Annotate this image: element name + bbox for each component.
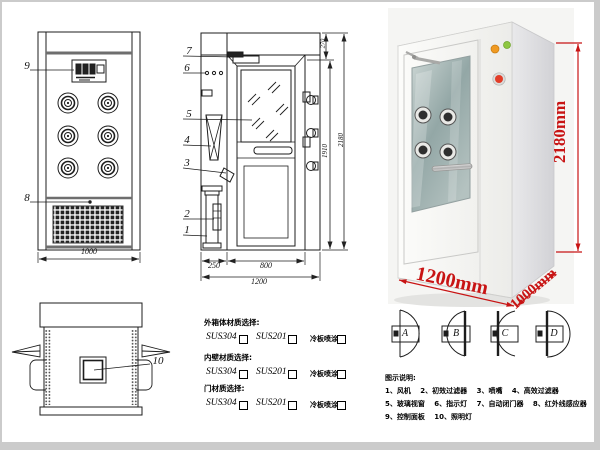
material-checkbox-outer-sus304[interactable] xyxy=(239,335,248,344)
legend-line: 9、控制面板 10、照明灯 xyxy=(385,412,472,422)
nozzle-icon xyxy=(58,158,78,178)
door-style-letter-d: D xyxy=(548,328,560,339)
dim-total-height: 2180 xyxy=(337,120,345,160)
material-option-label: SUS201 xyxy=(256,332,287,342)
page-frame-right xyxy=(594,0,600,450)
glass-door xyxy=(410,56,470,212)
legend-line: 1、风机 2、初效过滤器 3、喷嘴 4、高效过滤器 xyxy=(385,386,559,396)
dim-left-bay: 250 xyxy=(200,261,228,270)
nozzle-icon xyxy=(58,126,78,146)
front-view-drawing xyxy=(30,32,140,263)
door-style-letter-c: C xyxy=(499,328,511,339)
top-view-drawing xyxy=(12,303,170,415)
photo-height-label: 2180mm xyxy=(550,77,570,187)
callout-10: 10 xyxy=(150,355,166,367)
callout-5: 5 xyxy=(183,108,195,120)
material-option-label: 冷板喷涂 xyxy=(310,369,338,379)
material-checkbox-outer-sus201[interactable] xyxy=(288,335,297,344)
callout-3: 3 xyxy=(181,157,193,169)
dim-front-width: 1000 xyxy=(74,247,104,256)
legend-title: 图示说明: xyxy=(385,373,416,383)
nozzle-icon xyxy=(98,126,118,146)
dim-top-section: 270 xyxy=(320,33,327,55)
nozzle-icon xyxy=(98,93,118,113)
indicator-light-green xyxy=(504,42,511,49)
material-checkbox-inner-sus201[interactable] xyxy=(288,370,297,379)
callout-6: 6 xyxy=(181,62,193,74)
material-checkbox-door-sus201[interactable] xyxy=(288,401,297,410)
legend-line: 5、玻璃视窗 6、指示灯 7、自动闭门器 8、红外线感应器 xyxy=(385,399,587,409)
air-grille xyxy=(53,206,123,243)
dim-door-width: 800 xyxy=(252,261,280,270)
dim-total-width: 1200 xyxy=(245,277,273,286)
callout-9: 9 xyxy=(21,60,33,72)
door-style-letter-a: A xyxy=(399,328,411,339)
nozzle-icon xyxy=(98,158,118,178)
page-frame-bottom xyxy=(0,442,600,450)
material-checkbox-door-coldplate[interactable] xyxy=(337,401,346,410)
material-checkbox-door-sus304[interactable] xyxy=(239,401,248,410)
material-option-label: SUS201 xyxy=(256,367,287,377)
door-style-icons xyxy=(392,310,570,357)
material-section-title: 门材质选择: xyxy=(204,383,245,394)
page-frame-top xyxy=(0,0,600,2)
material-option-label: SUS304 xyxy=(206,398,237,408)
callout-8: 8 xyxy=(21,192,33,204)
callout-7: 7 xyxy=(183,45,195,57)
material-option-label: SUS304 xyxy=(206,332,237,342)
material-checkbox-inner-coldplate[interactable] xyxy=(337,370,346,379)
dim-door-height: 1910 xyxy=(321,131,329,171)
material-option-label: SUS201 xyxy=(256,398,287,408)
material-option-label: 冷板喷涂 xyxy=(310,334,338,344)
material-option-label: SUS304 xyxy=(206,367,237,377)
material-option-label: 冷板喷涂 xyxy=(310,400,338,410)
callout-2: 2 xyxy=(181,208,193,220)
drawing-canvas xyxy=(0,0,600,450)
air-shower-datasheet: 9 8 7 6 5 4 3 2 1 10 1000 250 800 1200 2… xyxy=(0,0,600,450)
material-checkbox-outer-coldplate[interactable] xyxy=(337,335,346,344)
door-style-letter-b: B xyxy=(450,328,462,339)
callout-1: 1 xyxy=(181,224,193,236)
material-checkbox-inner-sus304[interactable] xyxy=(239,370,248,379)
callout-4: 4 xyxy=(181,134,193,146)
material-section-title: 内壁材质选择: xyxy=(204,352,252,363)
material-section-title: 外箱体材质选择: xyxy=(204,317,260,328)
page-frame-left xyxy=(0,0,2,450)
nozzle-icon xyxy=(58,93,78,113)
indicator-light-orange xyxy=(491,45,499,53)
